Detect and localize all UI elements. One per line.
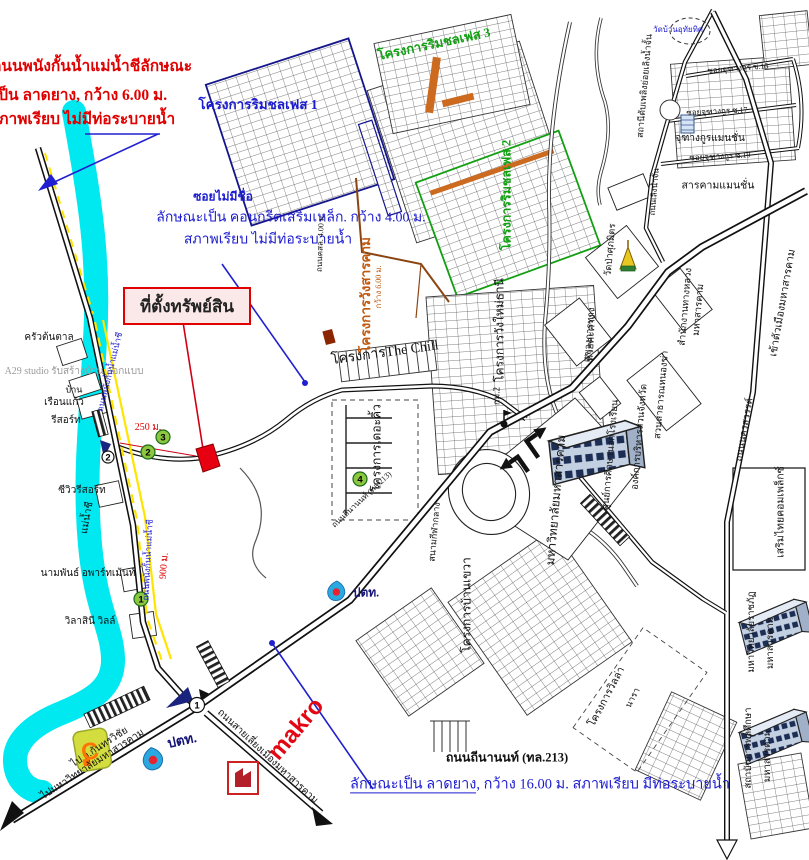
soi-note-line2: สภาพเรียบ ไม่มีท่อระบายน้ำ: [184, 234, 352, 249]
wat-uthaithit-label: วัดบ้านอุทัยทิศ: [653, 26, 703, 34]
kruaton-label: ครัวต้นตาล: [24, 333, 73, 344]
sermthai-building: [733, 468, 805, 570]
chuthangkun-mansion-label: จุฑางกูรแมนชั่น: [675, 134, 745, 145]
soi-note-title: ซอยไม่มีชื่อ: [193, 191, 253, 204]
marker-3: 3: [160, 433, 165, 444]
project-wangsarakham-label: โครงการวังสารคาม: [359, 237, 373, 353]
wangsarakham-width-label: กว้าง 6.00 ม.: [375, 265, 383, 308]
thinanon-desc-underlined: ลักษณะเป็น ลาดยาง: [350, 776, 476, 793]
thinanon-desc-rest: , กว้าง 16.00 ม. สภาพเรียบ มีท่อระบายน้ำ: [476, 776, 730, 792]
project-wangmai-label: โครงการวังใหม่ธานี: [494, 278, 507, 382]
sarakham-mansion-label: สารคามแมนชั่น: [682, 180, 755, 191]
levee-note-line3: สภาพเรียบ ไม่มีท่อระบายน้ำ: [0, 112, 175, 128]
rueankaew-label: เรือนแก้ว: [44, 398, 84, 409]
ptt-logo: [141, 746, 165, 772]
property-label-text: ที่ตั้งทรัพย์สิน: [140, 293, 234, 320]
project-rimchon-phase1-label: โครงการริมชลเฟส 1: [198, 98, 317, 112]
ptt-wordmark-2: ปตท.: [353, 587, 379, 600]
distance-250m: 250 ม.: [135, 423, 162, 434]
wilasini-ville-label: วิลาสินี วิลล์: [65, 617, 116, 628]
baan-label: บ้าน: [66, 385, 83, 394]
a29-studio-label: A29 studio รับสร้างบ้าน ออกแบบ: [5, 367, 144, 378]
marker-i1: 1: [194, 701, 200, 712]
resort-label: รีสอร์ท: [51, 416, 80, 427]
levee-note-line1: ถนนพนังกั้นน้ำแม่น้ำชีลักษณะ: [0, 59, 192, 75]
pe-institute-label-1: สถาบันการพลศึกษา: [745, 707, 755, 788]
marker-2: 2: [145, 448, 150, 459]
map-canvas: 2 3 1 4 1 2 ถนนพนังกั้นน้ำแม่น้ำชีลักษณะ…: [0, 0, 809, 860]
project-bankhwa-label: โครงการบ้านเขวา: [461, 557, 474, 653]
thinanon-title: ถนนถีนานนท์ (ทล.213): [446, 751, 568, 764]
rajabhat-label-2: มหาสารคาม: [767, 617, 777, 669]
rajabhat-label-1: มหาวิทยาลัยราชภัฏ: [748, 591, 758, 672]
furniture-store-logo: [228, 762, 258, 794]
marker-i2: 2: [105, 453, 110, 464]
km2-label: กม.2: [492, 387, 501, 405]
pond: [660, 100, 680, 120]
property-leader: [183, 322, 203, 449]
seaview-resort-label: ซีวิวรีสอร์ท: [58, 486, 105, 497]
marker-4: 4: [357, 475, 363, 486]
levee-note-line2: เป็น ลาดยาง, กว้าง 6.00 ม.: [0, 88, 167, 104]
property-parcel: [196, 444, 220, 472]
nampan-apartment-label: นามพันธ์ อพาร์ทเม้นท์: [41, 569, 136, 580]
thinanon-desc: ลักษณะเป็น ลาดยาง, กว้าง 16.00 ม. สภาพเร…: [350, 777, 730, 792]
project-rimchon-phase2-label: โครงการริมชลเฟส 2: [500, 140, 513, 250]
small-comb: [430, 721, 470, 752]
ptt-logo-2: [328, 581, 345, 601]
pe-institute-label-2: มหาสารคาม: [764, 730, 774, 782]
soi-note-line1: ลักษณะเป็น คอนกรีตเสริมเหล็ก. กว้าง 4.00…: [156, 212, 425, 227]
sermthai-label: เสริมไทยคอมเพล็กซ์: [775, 466, 786, 558]
property-label-box: ที่ตั้งทรัพย์สิน: [123, 287, 251, 325]
